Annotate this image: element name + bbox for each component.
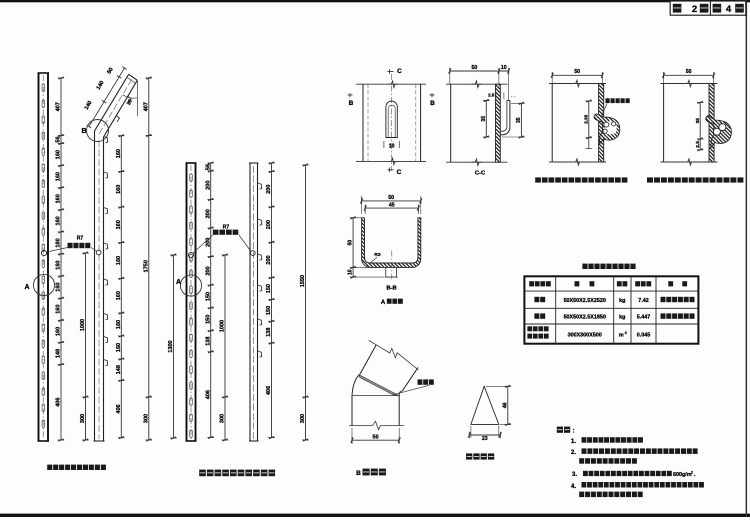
svg-text:160: 160 [56, 305, 62, 314]
svg-text:150: 150 [205, 292, 211, 301]
svg-text:2.35: 2.35 [583, 114, 588, 123]
svg-text:300: 300 [300, 414, 306, 423]
svg-text:m: m [619, 333, 624, 339]
svg-text:A: A [24, 284, 29, 291]
svg-text:R3: R3 [374, 252, 380, 258]
svg-text:200: 200 [205, 209, 211, 218]
svg-text:56: 56 [205, 164, 211, 170]
svg-text:B-B: B-B [386, 286, 396, 292]
svg-text:148: 148 [116, 365, 122, 374]
svg-text:150: 150 [266, 284, 272, 293]
svg-text:5.447: 5.447 [637, 315, 651, 321]
svg-text:2: 2 [691, 471, 693, 475]
svg-text:3.: 3. [572, 472, 577, 478]
svg-text:160: 160 [56, 172, 62, 181]
svg-text:R7: R7 [77, 236, 84, 242]
svg-text:10: 10 [389, 144, 395, 150]
svg-text:35: 35 [695, 118, 701, 124]
svg-text:160: 160 [56, 150, 62, 159]
svg-text:138: 138 [266, 328, 272, 337]
svg-text:45: 45 [389, 202, 395, 208]
svg-text:160: 160 [56, 261, 62, 270]
svg-text:10: 10 [501, 65, 507, 71]
svg-text:406: 406 [56, 398, 62, 407]
svg-text:4.: 4. [571, 484, 576, 490]
svg-text:23: 23 [482, 436, 488, 442]
svg-text:160: 160 [56, 283, 62, 292]
svg-text:2.5: 2.5 [488, 92, 495, 97]
svg-text:50: 50 [373, 434, 379, 440]
svg-text:1.: 1. [571, 439, 576, 445]
svg-text:200: 200 [266, 255, 272, 264]
svg-text:A: A [381, 300, 386, 306]
svg-text:35: 35 [516, 117, 522, 123]
svg-text:50: 50 [686, 69, 692, 75]
svg-text:600g/m: 600g/m [673, 472, 692, 478]
svg-text:A: A [176, 279, 181, 286]
svg-text:160: 160 [56, 327, 62, 336]
svg-text:148: 148 [56, 349, 62, 358]
svg-text:C: C [397, 169, 402, 176]
svg-text:50X50X2.5X1850: 50X50X2.5X1850 [564, 315, 606, 321]
svg-text:150: 150 [266, 306, 272, 315]
svg-text:50: 50 [574, 69, 580, 75]
svg-text:160: 160 [116, 256, 122, 265]
svg-text:160: 160 [56, 194, 62, 203]
svg-text:B: B [81, 128, 86, 135]
svg-text:4: 4 [726, 4, 732, 15]
svg-text:1000: 1000 [80, 319, 86, 331]
svg-text:200: 200 [205, 181, 211, 190]
svg-text:407: 407 [56, 102, 62, 111]
svg-text:50: 50 [348, 240, 354, 246]
svg-text:160: 160 [56, 238, 62, 247]
svg-text:B: B [356, 470, 361, 477]
svg-text:1750: 1750 [143, 260, 149, 272]
svg-text:0.045: 0.045 [637, 333, 651, 339]
svg-text:150: 150 [205, 315, 211, 324]
svg-text:138: 138 [205, 337, 211, 346]
svg-text:50: 50 [388, 195, 394, 201]
svg-text:kg: kg [619, 315, 625, 321]
svg-text:2: 2 [692, 4, 697, 15]
svg-text::: : [573, 428, 575, 435]
svg-text:1550: 1550 [300, 275, 306, 287]
svg-text:56: 56 [56, 136, 62, 142]
svg-text:160: 160 [116, 343, 122, 352]
svg-text:3: 3 [625, 331, 627, 335]
svg-text:406: 406 [116, 404, 122, 413]
svg-text:200: 200 [205, 266, 211, 275]
svg-text:35: 35 [481, 116, 487, 122]
svg-text:160: 160 [116, 320, 122, 329]
svg-text:C: C [397, 68, 402, 75]
svg-text:300: 300 [143, 414, 149, 423]
svg-text:160: 160 [116, 220, 122, 229]
svg-text:50X50X2.5X2520: 50X50X2.5X2520 [564, 298, 606, 304]
svg-text:160: 160 [116, 185, 122, 194]
svg-text:160: 160 [56, 216, 62, 225]
svg-text:300X300X500: 300X300X500 [568, 333, 602, 339]
svg-text:10: 10 [348, 269, 354, 275]
svg-text:1300: 1300 [168, 340, 174, 352]
svg-text:407: 407 [143, 102, 149, 111]
svg-text:2.5: 2.5 [695, 141, 701, 148]
svg-text:2.: 2. [571, 450, 576, 456]
svg-text:46: 46 [502, 402, 508, 408]
svg-text:160: 160 [116, 291, 122, 300]
svg-text:406: 406 [266, 386, 272, 395]
svg-text:B: B [430, 100, 435, 107]
svg-text:200: 200 [266, 220, 272, 229]
svg-text:300: 300 [80, 414, 86, 423]
svg-text:1000: 1000 [220, 320, 226, 332]
svg-text:160: 160 [116, 149, 122, 158]
svg-text:300: 300 [220, 414, 226, 423]
svg-text:kg: kg [619, 298, 625, 304]
svg-text:406: 406 [205, 390, 211, 399]
svg-text:C-C: C-C [475, 171, 486, 177]
svg-text:B: B [349, 100, 354, 107]
svg-text:50: 50 [472, 65, 478, 71]
svg-text:7.42: 7.42 [638, 298, 649, 304]
svg-text:200: 200 [266, 185, 272, 194]
